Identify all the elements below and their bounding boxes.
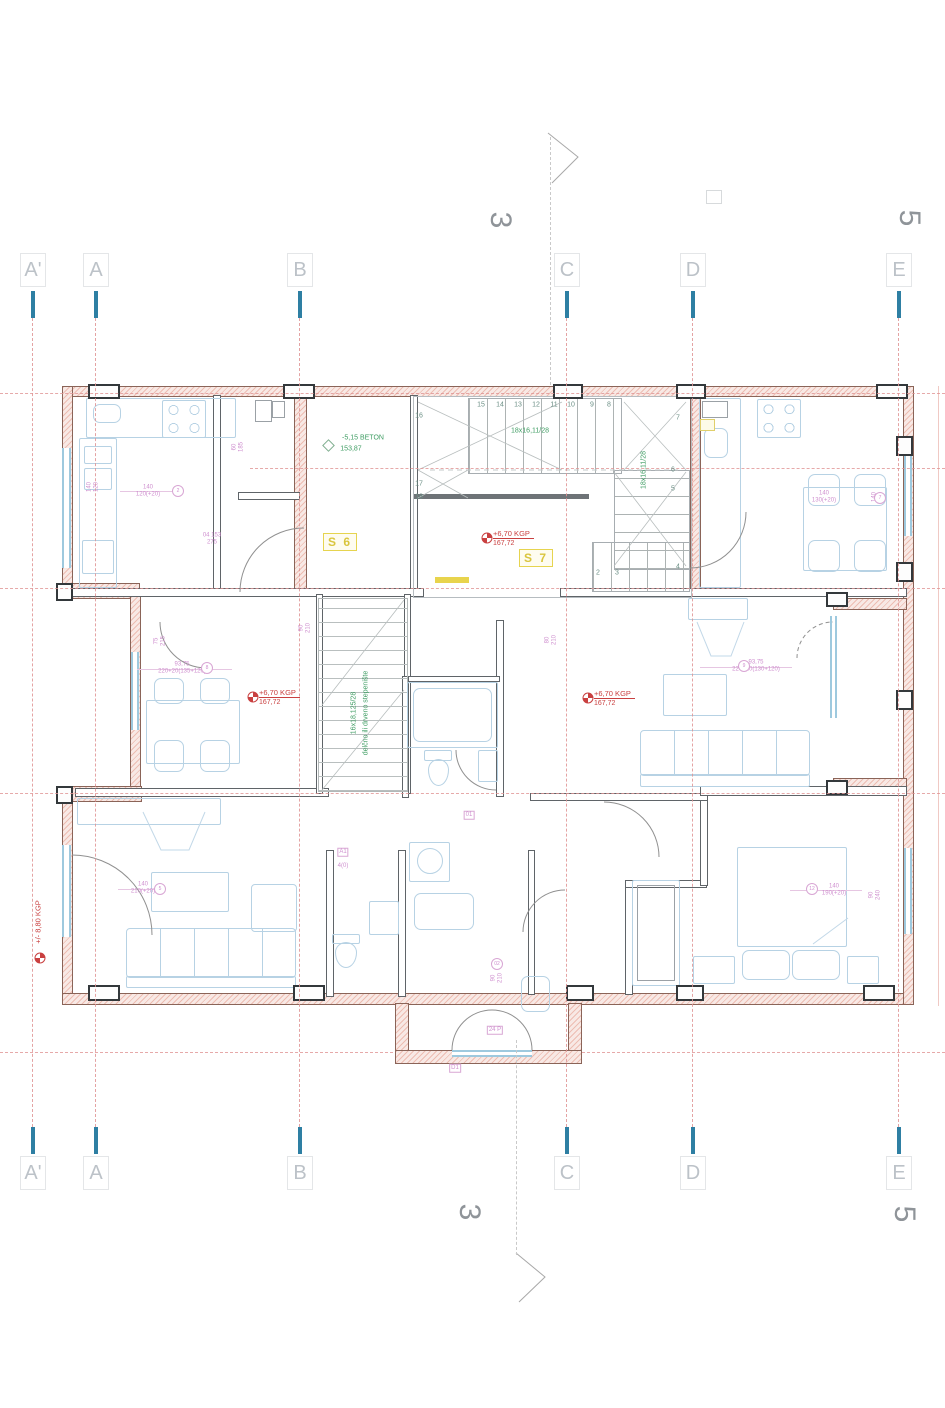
grid-hline	[250, 468, 945, 469]
grid-axis-line	[299, 318, 300, 1127]
stair-number: 8	[607, 402, 611, 409]
pier	[88, 985, 120, 1001]
dimension-note: 140 130(+20)	[812, 491, 836, 504]
grid-label-bottom: A'	[20, 1156, 46, 1190]
stair-number: 16	[415, 413, 423, 420]
section-line-3-top	[550, 137, 551, 385]
bed-fold-line	[813, 918, 848, 944]
stair-number: 15	[477, 402, 485, 409]
grid-axis-line	[898, 318, 899, 1127]
grid-hline	[0, 1052, 393, 1053]
dimension-note: 04 153 275	[203, 533, 221, 546]
door-arc-dashed	[797, 622, 833, 658]
stair-number: 17	[415, 481, 423, 488]
unit-label: S 7	[519, 549, 553, 567]
dimension-bubble: 7	[874, 492, 886, 504]
stair-diagonal	[418, 402, 562, 470]
pier	[863, 985, 895, 1001]
grid-tick-bottom	[31, 1127, 35, 1154]
section-number: 3	[483, 212, 517, 229]
level-cross-icon	[35, 953, 46, 964]
door-arc	[456, 750, 496, 790]
dimension-bubble: 9	[738, 660, 750, 672]
stair-spec-note: 18x16,11/28	[511, 428, 549, 435]
linework-overlay	[0, 0, 945, 1408]
grid-label-top: A	[83, 253, 109, 287]
door-arc	[690, 512, 746, 568]
grid-label-top: B	[287, 253, 313, 287]
section-jog-mark	[516, 1253, 545, 1302]
stair-diagonal	[418, 470, 468, 498]
grid-tick-top	[897, 291, 901, 318]
grid-axis-line	[566, 318, 567, 1127]
duct-marker	[700, 419, 715, 431]
dimension-note: 140 190(+20)	[822, 884, 846, 897]
grid-axis-line	[692, 318, 693, 1127]
dimension-note: 80 210	[545, 635, 558, 645]
grid-label-bottom: B	[287, 1156, 313, 1190]
pier	[56, 583, 73, 601]
stair-number: 6	[671, 467, 675, 474]
door-arc	[523, 890, 565, 932]
dimension-bubble: 2	[172, 485, 184, 497]
pier	[826, 592, 848, 607]
tv-icon	[143, 812, 205, 850]
stair-number: 3	[615, 570, 619, 577]
grid-tick-bottom	[94, 1127, 98, 1154]
grid-label-bottom: C	[554, 1156, 580, 1190]
elevation-value: +6,70 KGP	[493, 529, 534, 539]
dimension-note: 24 P	[487, 1026, 503, 1035]
dimension-note: A1	[337, 848, 348, 857]
grid-label-top: D	[680, 253, 706, 287]
section-jog-mark	[548, 133, 578, 183]
grid-label-bottom: A	[83, 1156, 109, 1190]
section-number: 5	[892, 210, 926, 227]
grid-tick-top	[565, 291, 569, 318]
grid-tick-top	[94, 291, 98, 318]
grid-axis-line	[95, 318, 96, 1127]
dimension-note: 140 120	[87, 482, 100, 492]
elevation-height: 167,72	[594, 700, 615, 707]
pier	[88, 384, 120, 399]
dimension-note: 93,75 220+20(135+120)	[158, 662, 206, 675]
level-cross-icon	[583, 693, 594, 704]
section-line-3-bottom	[516, 1040, 517, 1255]
pier	[676, 384, 706, 399]
dimension-bubble: 5	[154, 883, 166, 895]
pier	[876, 384, 908, 399]
door-arc	[72, 855, 152, 935]
dimension-bubble: 8	[201, 662, 213, 674]
stair-number: 14	[496, 402, 504, 409]
elevation-height: 167,72	[493, 540, 514, 547]
pier	[676, 985, 704, 1001]
stair-number: 12	[532, 402, 540, 409]
grid-tick-top	[31, 291, 35, 318]
grid-label-bottom: D	[680, 1156, 706, 1190]
stair-number: 7	[676, 415, 680, 422]
dimension-note: 140 120(+20)	[136, 485, 160, 498]
unit-label: S 6	[323, 533, 357, 551]
pier	[293, 985, 325, 1001]
grid-hline	[0, 588, 945, 589]
stair-number: 2	[596, 570, 600, 577]
stair-number: 18	[415, 494, 423, 501]
dimension-note: 01	[464, 811, 475, 820]
tv-icon	[697, 622, 744, 656]
grid-tick-bottom	[897, 1127, 901, 1154]
grid-tick-top	[691, 291, 695, 318]
grid-label-top: C	[554, 253, 580, 287]
pier	[566, 985, 594, 1001]
section-number: 5	[887, 1206, 921, 1223]
dimension-note: 90 240	[869, 890, 882, 900]
stair-number: 4	[676, 564, 680, 571]
grid-hline	[582, 1052, 945, 1053]
grid-label-bottom: E	[886, 1156, 912, 1190]
pier	[56, 786, 73, 804]
grid-hline	[0, 793, 945, 794]
dimension-note: 60 185	[232, 442, 245, 452]
stair-diagonal	[624, 402, 686, 470]
level-cross-icon	[482, 533, 493, 544]
grid-hline	[0, 393, 945, 394]
dimension-bubble: 02	[491, 958, 503, 970]
dimension-note: 140 210(+20)	[131, 882, 155, 895]
elevation-height: 167,72	[259, 699, 280, 706]
level-cross-icon	[248, 692, 259, 703]
dimension-note: 90 210	[491, 973, 504, 983]
dimension-note: D1	[449, 1064, 461, 1073]
grid-label-top: A'	[20, 253, 46, 287]
stair-spec-note: delčno ili drveno stepenište	[363, 671, 370, 755]
door-arc	[604, 802, 659, 857]
dimension-note: 90 210	[299, 623, 312, 633]
stair-spec-note: 18x16,11/28	[641, 451, 648, 489]
stair-number: 13	[514, 402, 522, 409]
grid-axis-line	[32, 318, 33, 1127]
stair-spec-note: 16x18,125/28	[351, 692, 358, 734]
dimension-note: 4(0)	[338, 863, 349, 870]
stair-number: 10	[567, 402, 575, 409]
stair-diagonal	[614, 472, 686, 566]
stair-number: 9	[590, 402, 594, 409]
highlight-strip	[435, 577, 469, 583]
stair-number: 11	[550, 402, 557, 409]
door-arc	[240, 528, 304, 592]
dimension-note: 75 215	[154, 636, 167, 646]
pier	[553, 384, 583, 399]
grid-tick-bottom	[691, 1127, 695, 1154]
elevation-marker-vertical: +/- 8,80 KGP	[34, 900, 43, 944]
section-number: 3	[452, 1204, 486, 1221]
elevation-value: +6,70 KGP	[594, 689, 635, 699]
stair-spec-note: -5,15 BETON	[342, 435, 384, 442]
grid-tick-bottom	[565, 1127, 569, 1154]
dimension-bubble: 12	[806, 883, 818, 895]
elevation-value: +6,70 KGP	[259, 688, 300, 698]
stair-spec-note: 153,87	[340, 446, 361, 453]
grid-label-top: E	[886, 253, 912, 287]
grid-tick-top	[298, 291, 302, 318]
stair-number: 5	[671, 486, 675, 493]
floor-plan-canvas: A' A' A A B B C	[0, 0, 945, 1408]
grid-tick-bottom	[298, 1127, 302, 1154]
